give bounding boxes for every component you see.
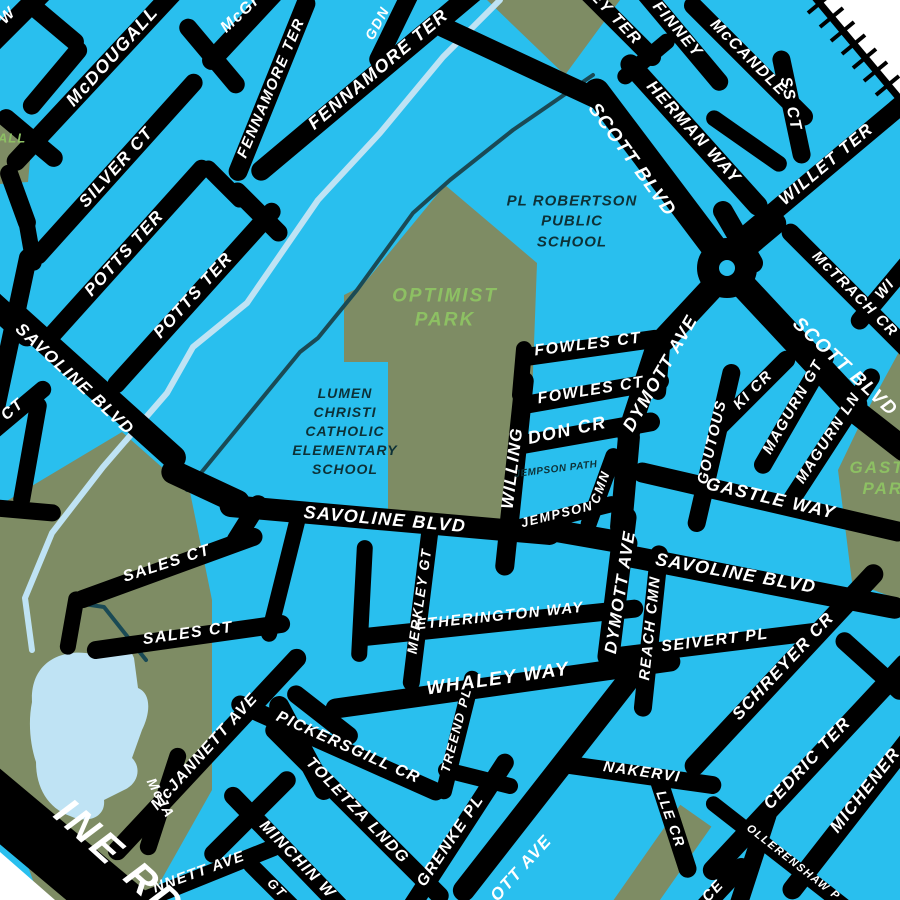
park-label-line: PARK [850, 478, 900, 499]
park-label-optimist: OPTIMIST PARK [392, 284, 498, 332]
street-label-all-19: ALL [0, 132, 26, 145]
roundabout-island [719, 260, 735, 276]
school-label-line: PL ROBERTSON [507, 192, 638, 212]
park-label-line: GASTLE [850, 457, 900, 478]
school-label-line: SCHOOL [507, 232, 638, 252]
school-label-line: PUBLIC [507, 212, 638, 232]
school-label-line: LUMEN [292, 384, 397, 403]
school-label-lumen-christi: LUMEN CHRISTI CATHOLIC ELEMENTARY SCHOOL [292, 384, 397, 478]
school-label-line: CATHOLIC [292, 422, 397, 441]
park-label-line: PARK [392, 308, 498, 332]
school-label-line: CHRISTI [292, 403, 397, 422]
park-label-gastle: GASTLE PARK [850, 457, 900, 500]
school-label-line: SCHOOL [292, 459, 397, 478]
school-label-pl-robertson: PL ROBERTSON PUBLIC SCHOOL [507, 192, 638, 253]
school-label-line: ELEMENTARY [292, 440, 397, 459]
neighbourhood-map-canvas[interactable]: WMcDOUGALLSILVER CTPOTTS TERPOTTS TERMcG… [0, 0, 900, 900]
park-label-line: OPTIMIST [392, 284, 498, 308]
